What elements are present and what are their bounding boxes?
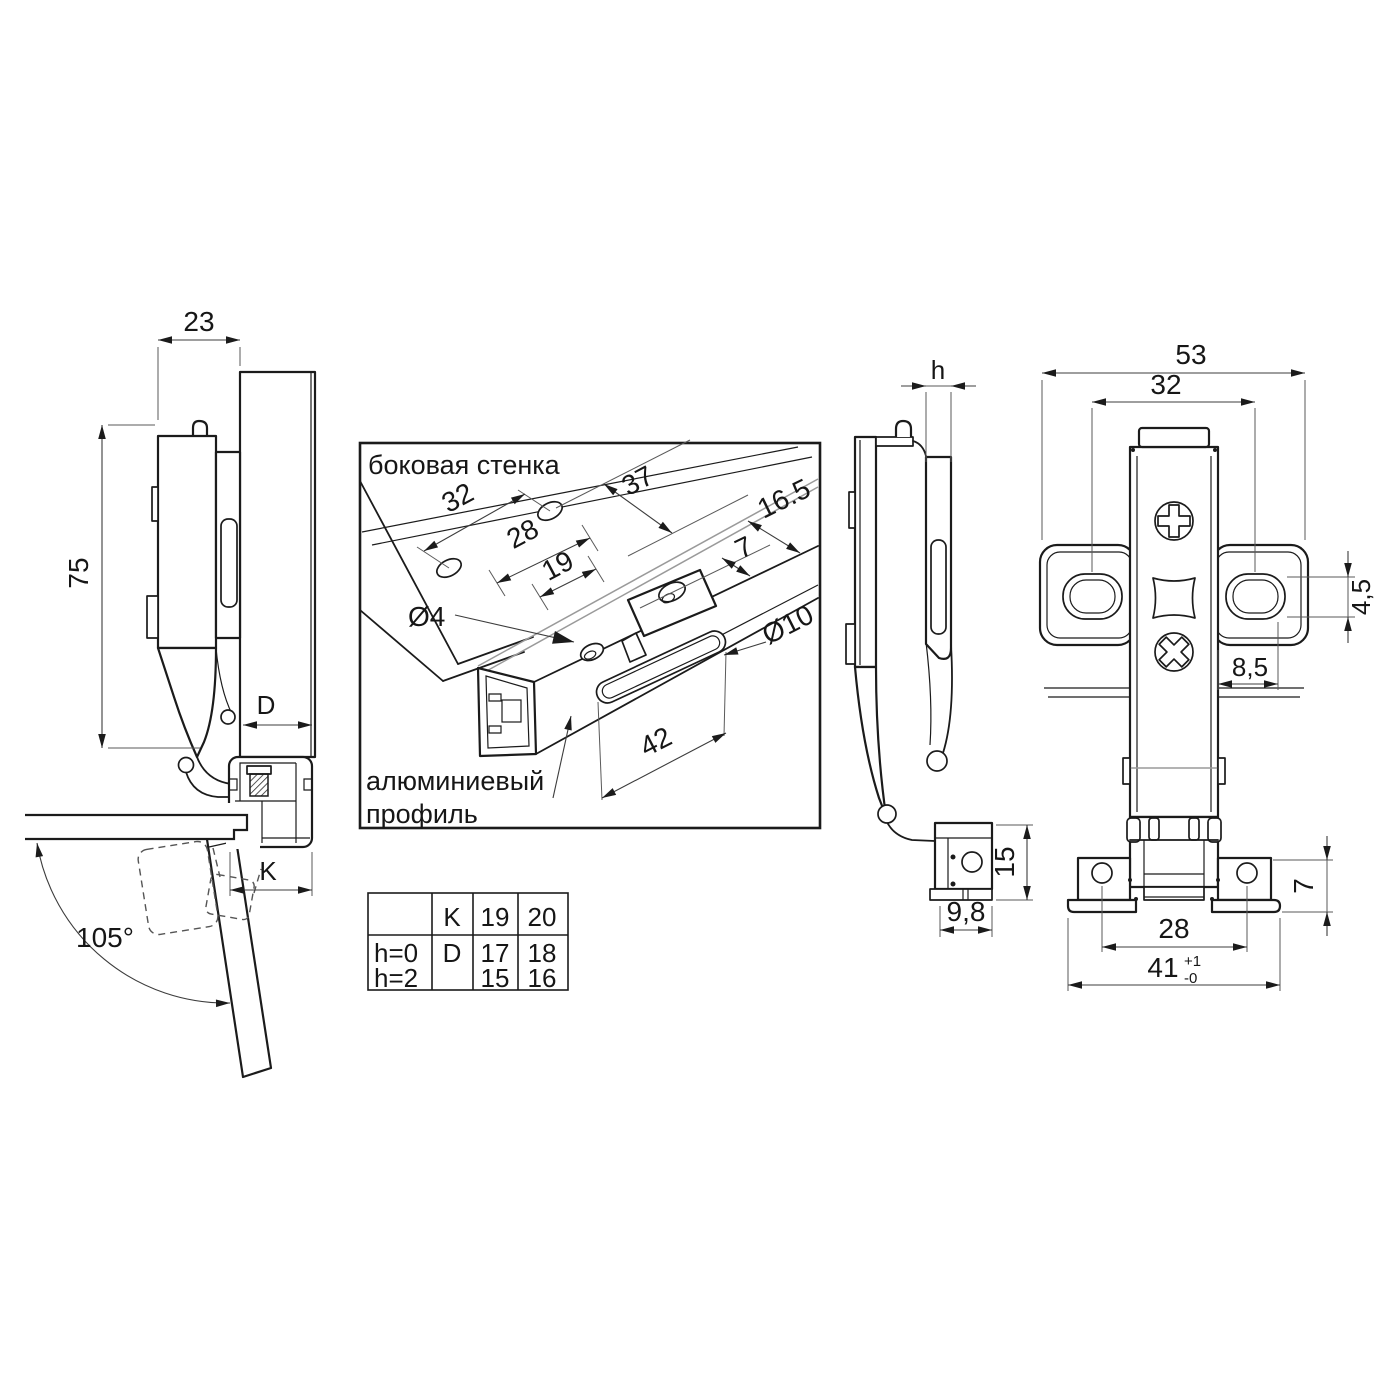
square-hole	[1153, 578, 1195, 618]
arm-top-tab	[193, 421, 207, 436]
table-cell-16: 16	[528, 963, 557, 993]
screw-body	[250, 774, 268, 796]
dim-15-label: 15	[989, 846, 1020, 877]
dim-9-8-label: 9,8	[947, 896, 986, 927]
inset-dim-7-label: 7	[730, 530, 758, 565]
arm-top-tab	[896, 421, 911, 437]
table-header-20: 20	[528, 902, 557, 932]
dim-41-tol-plus: +1	[1184, 953, 1201, 970]
pivot-hole	[179, 758, 194, 773]
inset-dim-32-label: 32	[437, 477, 479, 519]
shelf-panel	[25, 815, 247, 839]
plate-window	[931, 540, 946, 634]
table-cell-h2: h=2	[374, 963, 418, 993]
pivot-hole	[221, 710, 235, 724]
bracket-hole-right	[1237, 863, 1257, 883]
table-cell-d: D	[443, 938, 462, 968]
table-header-19: 19	[481, 902, 510, 932]
open-side-view: h 15 9,8	[846, 355, 1033, 937]
inset-dim-16-5-label: 16.5	[753, 473, 816, 525]
inset-dia-10-label: Ø10	[757, 599, 818, 651]
profile-pilot-hole	[578, 640, 606, 664]
oblong-hole-right	[1226, 574, 1285, 619]
oblong-hole-left	[1063, 574, 1122, 619]
inset-callout-line1: алюминиевый	[366, 766, 544, 796]
dim-4-5-label: 4,5	[1346, 579, 1376, 615]
dimension-table: K 19 20 h=0 D 17 18 h=2 15 16	[368, 893, 568, 993]
column-top-tab	[1139, 428, 1209, 447]
hinge-technical-drawing-page: 105° 23 75 D K боковая стенка	[0, 0, 1400, 1400]
hinge-arm-body	[158, 436, 216, 648]
dim-h-label: h	[931, 355, 945, 385]
dim-8-5-label: 8,5	[1232, 652, 1268, 682]
dim-53-label: 53	[1175, 339, 1206, 370]
inset-callout-line2: профиль	[366, 799, 478, 829]
dim-k-label: K	[259, 856, 277, 886]
plate-window	[221, 519, 237, 607]
hinge-open-ghost	[137, 840, 220, 936]
arm-strip	[855, 437, 876, 667]
hinge-cup	[1130, 817, 1218, 887]
inset-dim-28-label: 28	[502, 513, 544, 555]
foot-right	[1212, 900, 1280, 912]
detail-inset: боковая стенка	[360, 440, 820, 829]
dim-32-label: 32	[1150, 369, 1181, 400]
bracket-hole-left	[1092, 863, 1112, 883]
dim-d-label: D	[257, 690, 276, 720]
front-view: 53 32 4,5 8,5 7 28 41 +1 -0	[1040, 339, 1376, 991]
dim-28-label: 28	[1158, 913, 1189, 944]
screw-head	[247, 766, 271, 774]
dim-41-tol-minus: -0	[1184, 970, 1197, 987]
inset-dia-4-label: Ø4	[408, 601, 445, 632]
block-hole	[962, 852, 982, 872]
angle-105-label: 105°	[76, 922, 134, 953]
inset-title: боковая стенка	[368, 450, 561, 480]
pivot-hole	[927, 751, 947, 771]
dim-41-label: 41	[1147, 952, 1178, 983]
inset-dim-42-label: 42	[635, 721, 677, 763]
pivot-hole	[878, 805, 896, 823]
hinge-technical-drawing: 105° 23 75 D K боковая стенка	[0, 0, 1400, 1400]
clamp-plate	[628, 570, 716, 636]
door-panel	[240, 372, 315, 757]
dim-75-label: 75	[63, 557, 94, 588]
left-side-view: 105° 23 75 D K	[25, 306, 315, 1077]
table-header-k: K	[443, 902, 461, 932]
dim-23-label: 23	[183, 306, 214, 337]
table-cell-15: 15	[481, 963, 510, 993]
dim-7-label: 7	[1288, 878, 1319, 894]
profile-slot	[593, 627, 729, 706]
